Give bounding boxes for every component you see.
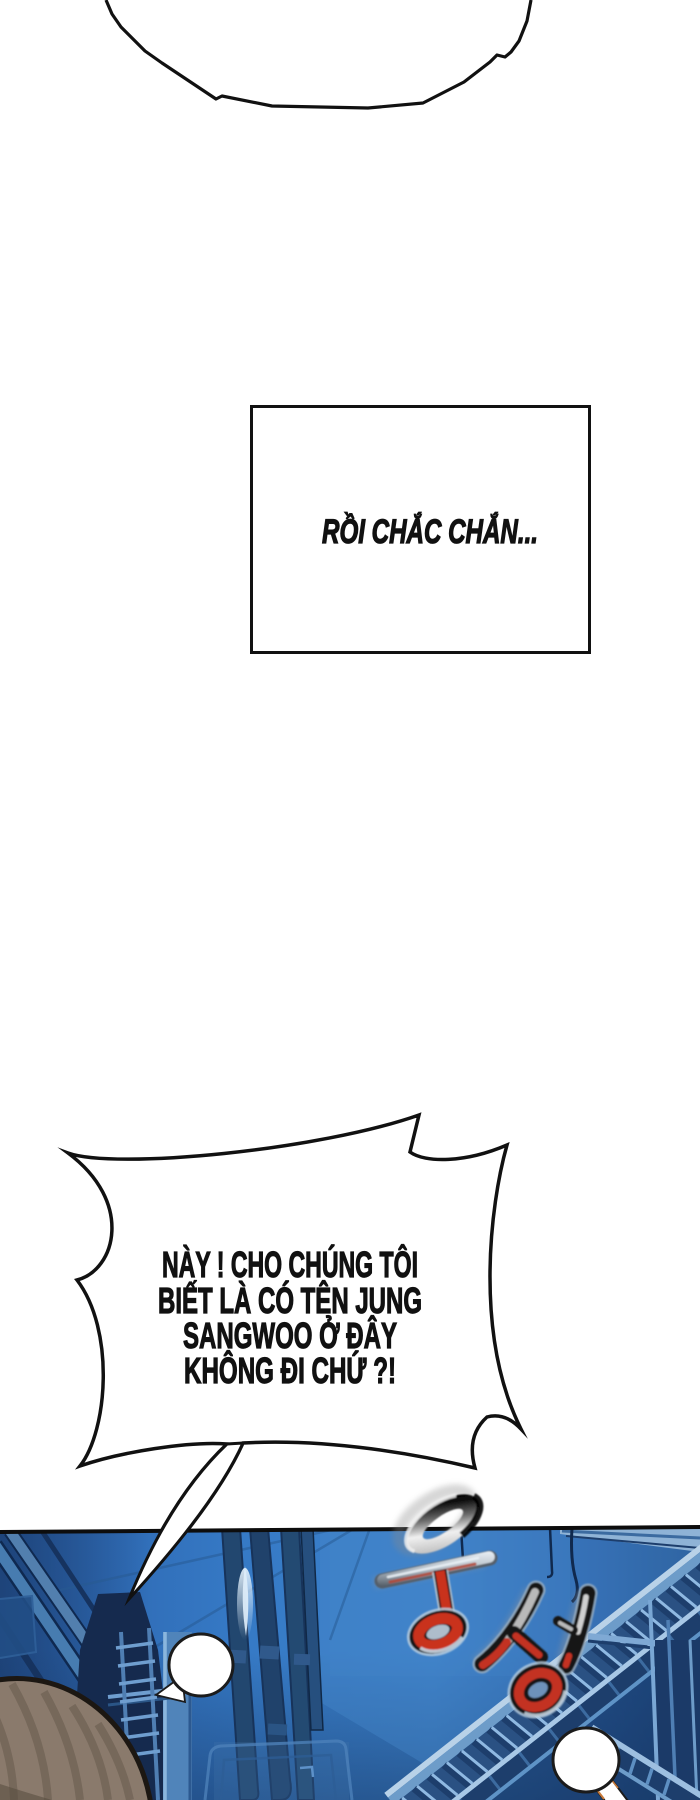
svg-text:KHÔNG ĐI CHỨ ?!: KHÔNG ĐI CHỨ ?! [184, 1349, 396, 1391]
svg-text:NÀY ! CHO CHÚNG TÔI: NÀY ! CHO CHÚNG TÔI [162, 1243, 418, 1285]
svg-text:RỒI CHẮC CHẮN...: RỒI CHẮC CHẮN... [322, 513, 538, 551]
